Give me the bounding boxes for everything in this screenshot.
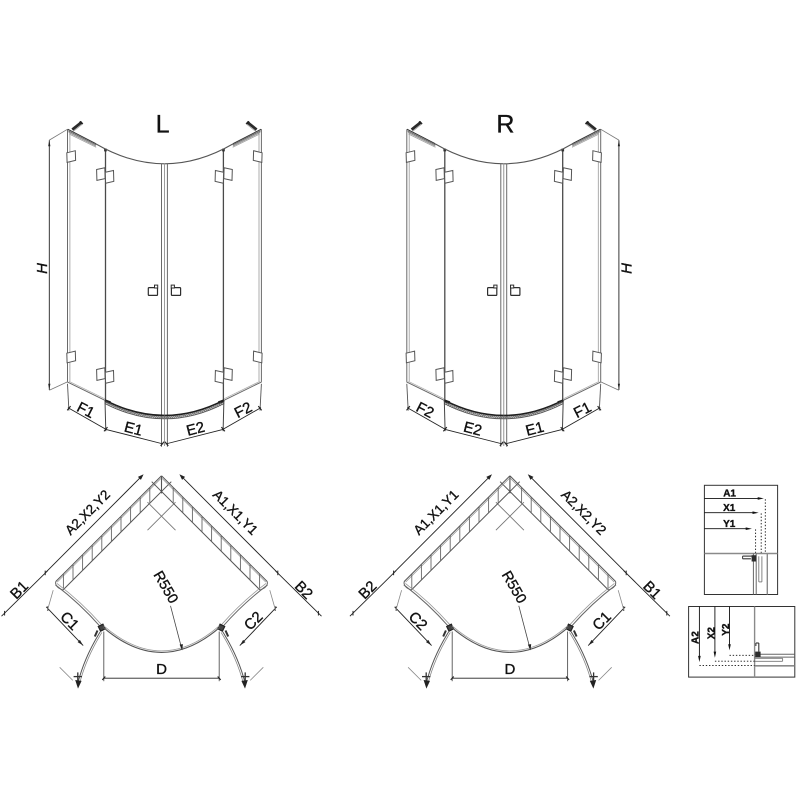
svg-text:X2: X2 <box>706 627 717 640</box>
svg-text:X1: X1 <box>723 503 736 514</box>
svg-text:Y2: Y2 <box>721 623 732 636</box>
svg-text:L: L <box>156 111 170 139</box>
svg-text:H: H <box>34 263 51 274</box>
svg-text:D: D <box>156 661 167 678</box>
svg-text:H: H <box>618 263 635 274</box>
svg-text:A2: A2 <box>690 631 701 644</box>
svg-text:R: R <box>496 111 514 139</box>
svg-text:Y1: Y1 <box>723 519 736 530</box>
svg-text:A1: A1 <box>723 489 736 500</box>
svg-text:D: D <box>504 661 515 678</box>
